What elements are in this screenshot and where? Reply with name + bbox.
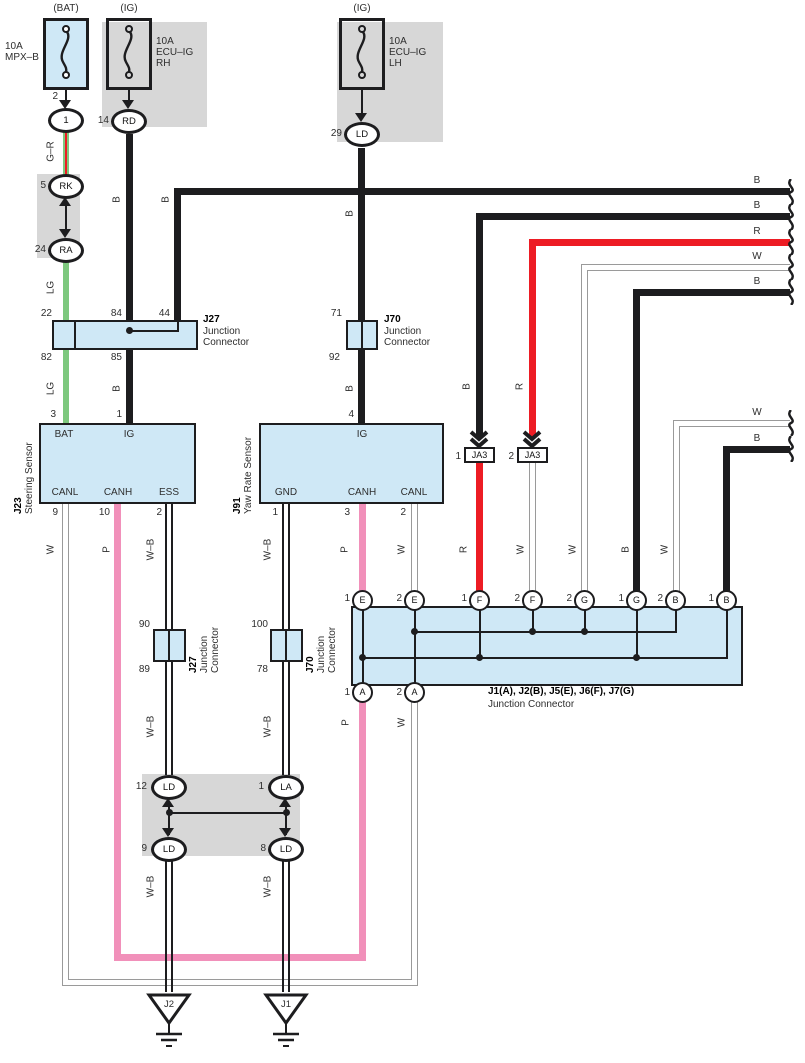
fuse-bat-header: (BAT) (39, 3, 93, 14)
wire-w-ja3-to-2f-b (535, 462, 536, 592)
wire-break-icon (783, 204, 795, 230)
arrow-down-icon (122, 100, 134, 109)
j70u-type-2: Connector (384, 337, 430, 348)
wire-b-to-1b (723, 446, 730, 592)
wire-b-horizontal-1 (174, 188, 790, 195)
jc-pin-1f: F (469, 590, 490, 611)
wire-code-lg: LG (46, 374, 57, 404)
jc-pin-2a: A (404, 682, 425, 703)
relay-link-line (65, 202, 67, 232)
j27l-pin-90: 90 (132, 619, 150, 630)
fuse-element-icon (106, 18, 152, 90)
j27-upper-divider (74, 322, 76, 348)
j27u-pin-85: 85 (106, 352, 122, 363)
ground-symbol-j2: J2 (145, 992, 193, 1054)
wire-code-wb: W–B (263, 872, 274, 902)
wire-w-ja3-to-2f-a (529, 462, 530, 592)
wire-wb-gnd-3a (282, 861, 284, 992)
fuse-lh-name2: LH (389, 58, 402, 69)
wire-code-w: W (746, 251, 768, 262)
wire-lg-j27-to-bat (63, 348, 69, 424)
wire-break-icon (783, 410, 795, 436)
j70l-id: J70 (305, 627, 316, 673)
wire-p-yaw-canh (359, 503, 366, 593)
junction-dot (529, 628, 536, 635)
fuse-lh-rating: 10A (389, 36, 407, 47)
yaw-sensor-id: J91 (232, 437, 243, 514)
wire-code-b: B (345, 199, 356, 229)
relay-pin-top: 5 (32, 180, 46, 191)
jc-internal-bus-upper (414, 631, 677, 633)
jc-pin-no: 2 (508, 593, 520, 604)
wire-r-ja3-to-1f (476, 462, 483, 592)
jc-pin-1e: E (352, 590, 373, 611)
j27-lower-box (153, 629, 186, 662)
wiring-diagram: JA3 JA3 1 RD LD RK RA LD LA LD LD E E F … (0, 0, 805, 1063)
shield-pin-1: 1 (248, 781, 264, 792)
connector-terminal: RA (48, 238, 84, 263)
connector-terminal: LA (268, 775, 304, 800)
yaw-terminal-canl: CANL (392, 487, 436, 498)
wire-break-icon (783, 279, 795, 305)
svg-text:J1: J1 (281, 999, 291, 1010)
connector-terminal: LD (344, 122, 380, 147)
j70-lower-divider (285, 631, 287, 660)
connector-terminal: RK (48, 174, 84, 199)
jc-pin-2g: G (574, 590, 595, 611)
ground-symbol-j1: J1 (262, 992, 310, 1054)
connector-terminal: LD (151, 775, 187, 800)
wire-wb-gnd-3b (288, 861, 290, 992)
jc-pin-2e: E (404, 590, 425, 611)
junction-dot (126, 327, 133, 334)
shield-link-horizontal (170, 812, 286, 814)
yaw-pin-gnd: 1 (262, 507, 278, 518)
junction-dot (411, 628, 418, 635)
jc-pin-no: 2 (651, 593, 663, 604)
jc-pin-no: 1 (338, 687, 350, 698)
wire-w-to-2g-a (581, 264, 582, 592)
wire-code-p: P (102, 535, 113, 565)
jc-internal-bus-lower (362, 657, 728, 659)
wire-code-wb: W–B (146, 872, 157, 902)
yaw-pin-canl: 2 (390, 507, 406, 518)
steering-pin-canl: 9 (42, 507, 58, 518)
j70l-type-2: Connector (327, 627, 338, 673)
wire-w-canl-bottom-inner (68, 979, 411, 980)
j70u-type-1: Junction (384, 326, 421, 337)
jc-internal-v1 (362, 608, 364, 684)
fuse-lh-stem (361, 90, 363, 114)
steering-pin-bat: 3 (40, 409, 56, 420)
svg-text:J2: J2 (164, 999, 174, 1010)
wire-w-to-2b-a (673, 420, 674, 592)
arrow-down-icon (279, 828, 291, 837)
wire-b-rd-to-j27 (126, 134, 133, 320)
wire-code-b: B (112, 374, 123, 404)
jc-internal-v3 (479, 608, 481, 659)
ja3-pin-2: 2 (501, 451, 514, 462)
j27u-pin-82: 82 (36, 352, 52, 363)
steering-pin-ess: 2 (146, 507, 162, 518)
wire-wb-gnd-1a (282, 503, 284, 629)
wire-p-canh-right (359, 702, 366, 961)
wire-wb-ess-1a (165, 503, 167, 629)
fuse-rh-name1: ECU–IG (156, 47, 193, 58)
wire-wb-ess-1b (171, 503, 173, 629)
junction-dot (581, 628, 588, 635)
wire-w-canl-right-inner (411, 702, 412, 980)
steering-terminal-bat: BAT (44, 429, 84, 440)
fuse-lh-name1: ECU–IG (389, 47, 426, 58)
wire-code-lg: LG (46, 273, 57, 303)
fuse-rh-header: (IG) (102, 3, 156, 14)
junction-dot (359, 654, 366, 661)
j70u-id: J70 (384, 314, 401, 325)
double-chevron-down-icon (468, 430, 490, 447)
wire-code-b: B (462, 372, 473, 402)
wire-code-p: P (341, 708, 352, 738)
wire-r-horizontal (529, 239, 790, 246)
j70l-pin-100: 100 (246, 619, 268, 630)
shield-pin-12: 12 (129, 781, 147, 792)
shield-pin-9: 9 (131, 843, 147, 854)
fuse-rh-pin: 14 (92, 115, 109, 126)
j70l-type-1: Junction (316, 627, 327, 673)
steering-sensor-label: J23Steering Sensor (13, 442, 35, 514)
wire-code-b: B (746, 200, 768, 211)
jc-internal-v2 (414, 608, 416, 684)
jc-pin-no: 2 (560, 593, 572, 604)
wire-code-w: W (46, 535, 57, 565)
wire-b-j70-to-yaw-ig (358, 348, 365, 424)
j27u-pin-84: 84 (106, 308, 122, 319)
jc-pin-no: 2 (390, 687, 402, 698)
wire-w-yaw-canl-b (417, 503, 418, 593)
j27u-type-2: Connector (203, 337, 249, 348)
wire-wb-gnd-2a (282, 660, 284, 775)
wire-code-wb: W–B (146, 712, 157, 742)
fuse-lh-header: (IG) (335, 3, 389, 14)
wire-w-horizontal-lower-a (673, 420, 790, 421)
shield-pin-8: 8 (250, 843, 266, 854)
j27l-type-2: Connector (210, 627, 221, 673)
steering-pin-ig: 1 (106, 409, 122, 420)
wire-break-icon (783, 229, 795, 255)
wire-wb-gnd-2b (288, 660, 290, 775)
jc-pin-1a: A (352, 682, 373, 703)
wire-b-ld-to-j70 (358, 148, 365, 321)
j27l-id: J27 (188, 627, 199, 673)
wire-code-b: B (621, 535, 632, 565)
wire-w-canl-bottom-outer (62, 985, 418, 986)
wire-code-b: B (345, 374, 356, 404)
wire-b-horizontal-2 (476, 213, 790, 220)
jc-pin-no: 2 (390, 593, 402, 604)
j70-upper-divider (361, 322, 363, 348)
wire-code-w: W (397, 708, 408, 738)
jc-internal-v8 (726, 608, 728, 659)
wire-code-wb: W–B (263, 712, 274, 742)
wire-b-to-ja3-1 (476, 213, 483, 438)
yaw-sensor-label: J91Yaw Rate Sensor (232, 437, 254, 514)
double-chevron-down-icon (521, 430, 543, 447)
fuse-bat-name: MPX–B (5, 52, 39, 63)
jc-pin-no: 1 (455, 593, 467, 604)
wire-w-to-2g-b (587, 270, 588, 592)
fuse-rh-name2: RH (156, 58, 170, 69)
wire-code-w: W (397, 535, 408, 565)
relay-pin-bottom: 24 (26, 244, 46, 255)
wire-code-w: W (568, 535, 579, 565)
wire-code-gr: G–R (46, 137, 57, 167)
j70l-pin-78: 78 (250, 664, 268, 675)
steering-sensor-id: J23 (13, 442, 24, 514)
wire-code-b: B (746, 175, 768, 186)
main-junction-connector-box (351, 606, 743, 686)
wire-b-j27-to-steering-ig (126, 348, 133, 424)
wire-wb-ess-3b (171, 861, 173, 992)
steering-terminal-canl: CANL (43, 487, 87, 498)
yaw-terminal-canh: CANH (340, 487, 384, 498)
wire-p-canh-left (114, 503, 121, 961)
wire-w-canl-left-outer (62, 503, 63, 986)
fuse-bat-rating: 10A (5, 41, 23, 52)
j27l-label: J27JunctionConnector (188, 627, 221, 673)
wire-code-r: R (515, 372, 526, 402)
yaw-terminal-ig: IG (342, 429, 382, 440)
j27-upper-internal-riser (177, 322, 179, 331)
wire-w-canl-right-outer (417, 702, 418, 986)
jc-title: J1(A), J2(B), J5(E), J6(F), J7(G) (488, 686, 634, 697)
wire-code-b: B (112, 185, 123, 215)
wire-r-to-ja3-2 (529, 239, 536, 438)
j27l-pin-89: 89 (132, 664, 150, 675)
steering-pin-canh: 10 (90, 507, 110, 518)
junction-dot (166, 809, 173, 816)
wire-code-wb: W–B (146, 535, 157, 565)
jc-pin-1b: B (716, 590, 737, 611)
jc-internal-v6 (636, 608, 638, 659)
wire-b-pin44-vertical (174, 188, 181, 321)
yaw-terminal-gnd: GND (264, 487, 308, 498)
fuse-lh-pin: 29 (325, 128, 342, 139)
fuse-element-icon (339, 18, 385, 90)
j27-lower-divider (168, 631, 170, 660)
wire-lg-ra-to-j27 (63, 262, 69, 321)
j27u-type-1: Junction (203, 326, 240, 337)
steering-terminal-ig: IG (109, 429, 149, 440)
wire-code-b: B (746, 433, 768, 444)
wire-b-horizontal-3 (633, 289, 790, 296)
arrow-down-icon (59, 229, 71, 238)
wire-code-r: R (459, 535, 470, 565)
wire-b-horizontal-4 (723, 446, 790, 453)
wire-w-horizontal-upper-a (581, 264, 790, 265)
jc-internal-v7 (675, 608, 677, 633)
wire-wb-ess-2a (165, 660, 167, 775)
fuse-bat-pin: 2 (42, 91, 58, 102)
wire-p-canh-bottom (114, 954, 366, 961)
connector-terminal: LD (268, 837, 304, 862)
wire-code-w: W (746, 407, 768, 418)
wire-code-b: B (161, 185, 172, 215)
ja3-connector-2: JA3 (517, 447, 548, 463)
j27-upper-internal-link (129, 330, 179, 332)
wire-code-w: W (660, 535, 671, 565)
jc-pin-no: 1 (612, 593, 624, 604)
j70u-pin-92: 92 (322, 352, 340, 363)
steering-sensor-name: Steering Sensor (24, 442, 35, 514)
wire-wb-ess-3a (165, 861, 167, 992)
ja3-connector-1: JA3 (464, 447, 495, 463)
j27u-id: J27 (203, 314, 220, 325)
yaw-pin-canh: 3 (334, 507, 350, 518)
wire-w-canl-left-inner (68, 503, 69, 980)
j70l-label: J70JunctionConnector (305, 627, 338, 673)
wire-w-yaw-canl-a (411, 503, 412, 593)
jc-pin-no: 1 (702, 593, 714, 604)
j27u-pin-22: 22 (36, 308, 52, 319)
wire-break-icon (783, 436, 795, 462)
wire-break-icon (783, 254, 795, 280)
jc-pin-2b: B (665, 590, 686, 611)
arrow-down-icon (355, 113, 367, 122)
wire-wb-ess-2b (171, 660, 173, 775)
junction-dot (283, 809, 290, 816)
wire-code-r: R (746, 226, 768, 237)
wire-code-b: B (746, 276, 768, 287)
j70-lower-box (270, 629, 303, 662)
jc-pin-2f: F (522, 590, 543, 611)
wire-w-to-2b-b (679, 426, 680, 592)
arrow-down-icon (162, 828, 174, 837)
jc-subtitle: Junction Connector (488, 699, 574, 710)
j27l-type-1: Junction (199, 627, 210, 673)
yaw-sensor-name: Yaw Rate Sensor (243, 437, 254, 514)
yaw-pin-ig: 4 (336, 409, 354, 420)
steering-terminal-ess: ESS (147, 487, 191, 498)
wire-code-p: P (340, 535, 351, 565)
connector-terminal: RD (111, 109, 147, 134)
wire-w-horizontal-upper-b (587, 270, 790, 271)
fuse-rh-rating: 10A (156, 36, 174, 47)
j27u-pin-44: 44 (154, 308, 170, 319)
junction-dot (633, 654, 640, 661)
wire-break-icon (783, 179, 795, 205)
connector-terminal: LD (151, 837, 187, 862)
connector-terminal: 1 (48, 108, 84, 133)
jc-pin-1g: G (626, 590, 647, 611)
wire-code-w: W (516, 535, 527, 565)
wire-code-wb: W–B (263, 535, 274, 565)
steering-terminal-canh: CANH (96, 487, 140, 498)
wire-w-horizontal-lower-b (679, 426, 790, 427)
wire-wb-gnd-1b (288, 503, 290, 629)
jc-pin-no: 1 (338, 593, 350, 604)
wire-b-to-1g (633, 289, 640, 592)
wire-gr-red-stripe (65, 130, 67, 175)
ja3-pin-1: 1 (448, 451, 461, 462)
fuse-element-icon (43, 18, 89, 90)
j70u-pin-71: 71 (324, 308, 342, 319)
junction-dot (476, 654, 483, 661)
